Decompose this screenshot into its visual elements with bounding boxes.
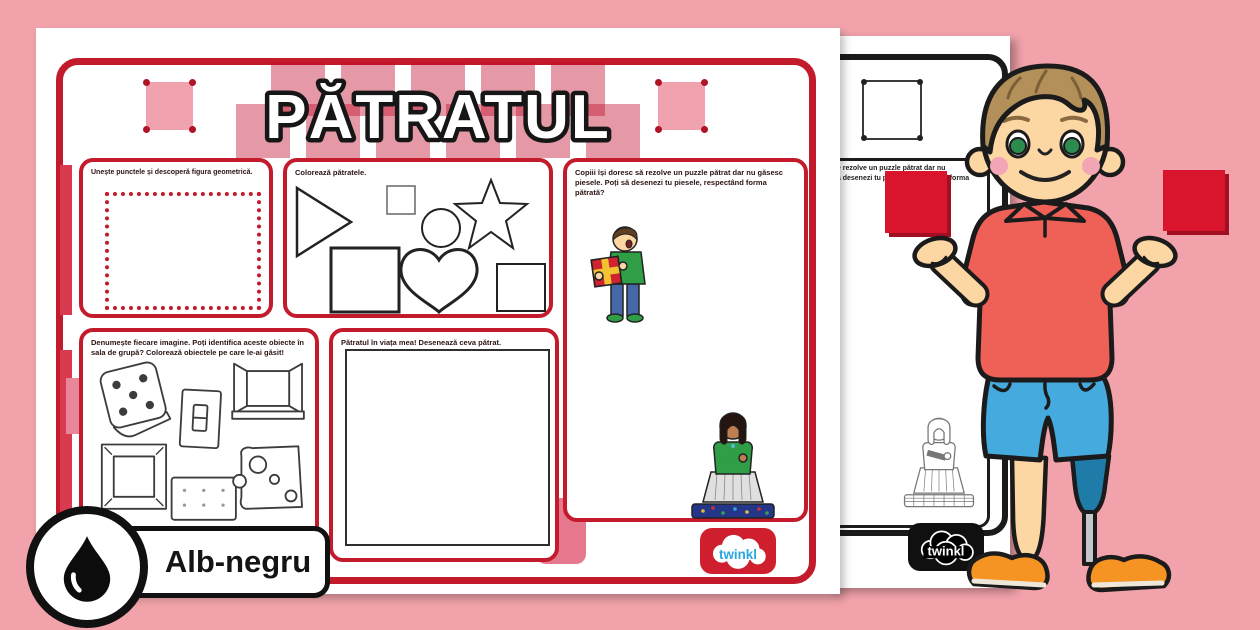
red-square-left <box>885 171 951 237</box>
heart-shape <box>401 250 477 312</box>
page-title: PĂTRATUL <box>265 83 610 152</box>
section-connect-dots: Unește punctele și descoperă figura geom… <box>79 158 273 318</box>
section-instruction: Copiii își doresc să rezolve un puzzle p… <box>567 162 804 197</box>
girl-with-puzzle-illustration <box>689 408 777 522</box>
worksheet-page-color: PĂTRATUL Unește punctele și descoperă fi… <box>36 28 840 594</box>
medium-square-shape <box>497 264 545 311</box>
version-badge: Alb-negru <box>116 526 330 598</box>
section-draw-square: Pătratul în viața mea! Desenează ceva pă… <box>329 328 559 562</box>
worksheet-title: PĂTRATUL <box>224 68 652 152</box>
prosthetic-leg <box>1084 512 1095 564</box>
ink-drop-icon <box>58 532 116 602</box>
version-badge-label: Alb-negru <box>165 544 311 580</box>
open-window-icon <box>232 364 304 419</box>
small-square-shape <box>387 186 415 214</box>
red-square-right <box>1163 170 1229 235</box>
boy-with-gift-illustration <box>583 224 661 332</box>
star-shape <box>455 180 527 248</box>
twinkl-logo-red: twinkl <box>700 528 776 574</box>
section-identify-objects: Denumește fiecare imagine. Poți identifi… <box>79 328 319 540</box>
cheese-slice-icon <box>233 446 302 508</box>
cracker-icon <box>172 478 236 520</box>
decor-bar <box>60 165 72 315</box>
section-instruction: Denumește fiecare imagine. Poți identifi… <box>83 332 315 358</box>
version-badge-circle <box>26 506 148 628</box>
triangle-shape <box>297 188 351 256</box>
boy-character-illustration <box>858 58 1230 604</box>
boy-leg <box>1012 456 1046 560</box>
resource-preview: se rezolve un puzzle pătrat dar nu să de… <box>0 0 1260 630</box>
drawing-box <box>345 349 550 546</box>
dotted-square-outline <box>105 192 261 310</box>
light-switch-icon <box>180 389 221 448</box>
corner-square-decoration <box>146 82 193 130</box>
picture-frame-icon <box>102 444 166 508</box>
square-objects-drawings <box>87 360 315 540</box>
circle-shape <box>422 209 460 247</box>
dice-icon <box>99 360 173 440</box>
section-color-squares: Colorează pătratele. <box>283 158 553 318</box>
section-instruction: Unește punctele și descoperă figura geom… <box>83 162 269 177</box>
large-square-shape <box>331 248 399 312</box>
section-puzzle: Copiii își doresc să rezolve un puzzle p… <box>563 158 808 522</box>
corner-square-decoration <box>658 82 705 130</box>
shapes-to-color <box>291 176 549 316</box>
prosthetic-socket <box>1072 456 1109 514</box>
section-instruction: Pătratul în viața mea! Desenează ceva pă… <box>333 332 555 348</box>
twinkl-wordmark: twinkl <box>719 547 757 562</box>
